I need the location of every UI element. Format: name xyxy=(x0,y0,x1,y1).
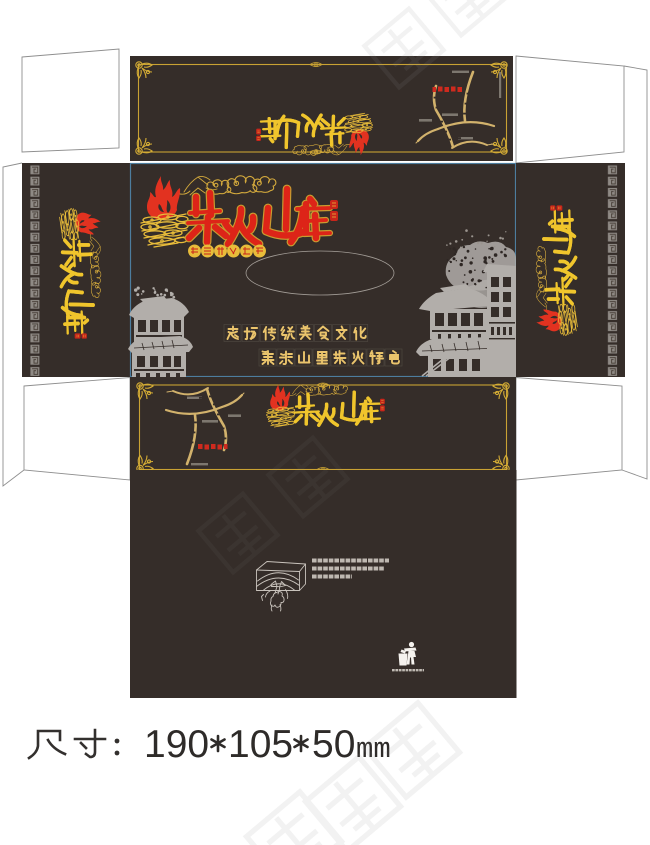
svg-text:105: 105 xyxy=(228,723,293,766)
svg-text:190: 190 xyxy=(144,723,209,766)
svg-text:50: 50 xyxy=(312,723,355,766)
